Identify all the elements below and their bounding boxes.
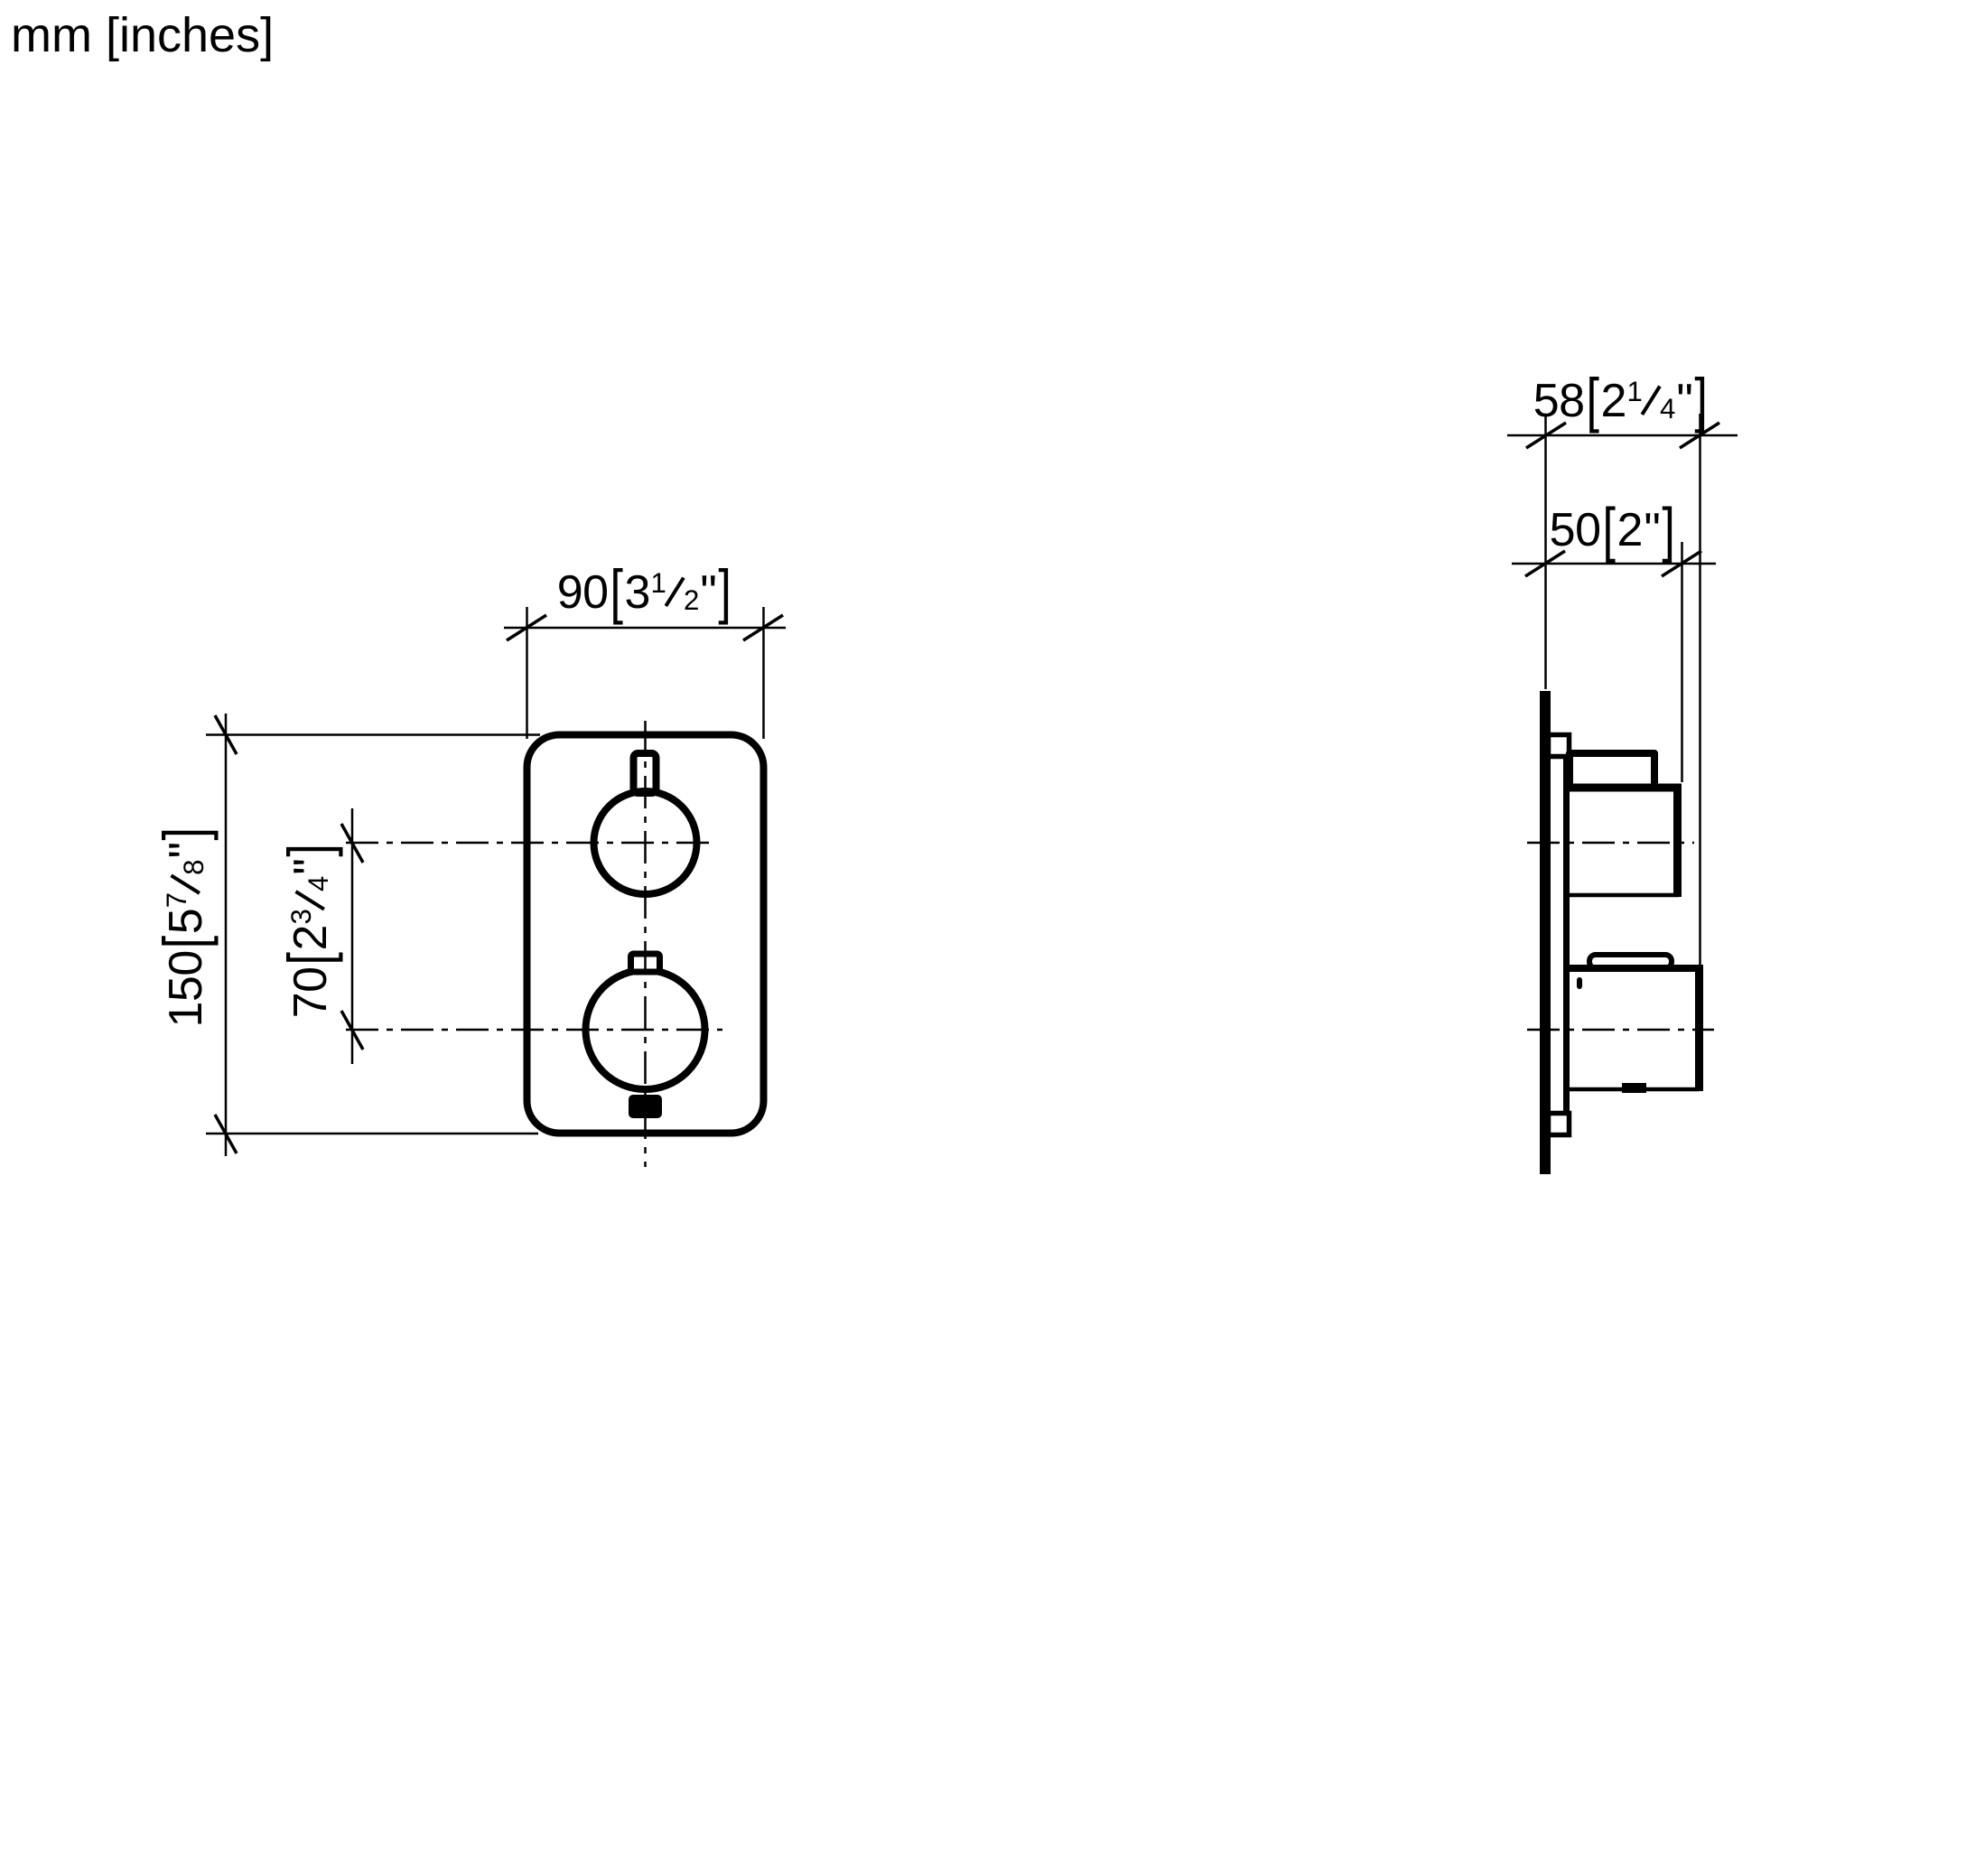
close-bracket: ] [1660,500,1676,561]
escutcheon-bottom-step [1549,1114,1570,1135]
frac-denominator: 4 [1660,393,1675,425]
front-view [346,721,764,1167]
dim-label-handle-spacing: 70[234"] [287,843,334,1019]
dim-inch-whole: 2 [1617,504,1642,556]
dim-label-depth-overall: 58[214"] [1533,378,1710,425]
inch-mark: " [1644,504,1660,556]
side-view [1527,691,1714,1174]
dim-mm: 58 [1533,375,1585,427]
dim-label-depth-to-handle: 50[2"] [1550,507,1677,554]
open-bracket: [ [281,950,341,966]
dim-label-front-width: 90[312"] [557,569,733,616]
inch-mark: " [1676,375,1692,427]
inch-mark: " [284,859,337,875]
side-detail-dot [1577,977,1582,989]
inch-mark: " [160,842,212,858]
dim-mm: 50 [1550,504,1601,556]
frac-denominator: 4 [303,876,334,891]
frac-denominator: 2 [684,584,699,616]
fraction-slash [294,890,325,911]
dim-inch-whole: 5 [160,909,212,934]
units-note: mm [inches] [11,11,274,60]
frac-denominator: 8 [178,860,210,875]
close-bracket: ] [156,826,217,843]
dim-mm: 90 [557,566,609,619]
frac-numerator: 3 [285,910,317,925]
open-bracket: [ [156,934,217,950]
frac-numerator: 1 [1627,376,1643,407]
fraction-slash [1640,385,1662,415]
inch-mark: " [700,566,716,619]
dim-inch-whole: 2 [1601,375,1626,427]
close-bracket: ] [281,843,341,859]
dim-mm: 70 [284,966,337,1018]
units-note-text: mm [inches] [11,8,274,62]
dim-mm: 150 [160,950,212,1027]
close-bracket: ] [1692,371,1709,432]
close-bracket: ] [716,563,732,623]
open-bracket: [ [1601,500,1617,561]
open-bracket: [ [1585,371,1601,432]
open-bracket: [ [609,563,625,623]
fraction-slash [664,576,685,607]
dim-inch-whole: 3 [625,566,650,619]
thermostat-handle-side-front-face [1673,784,1682,897]
frac-numerator: 7 [161,892,192,908]
dimension-drawing: mm [inches] 90[312"] 150[578"] 70[234"] … [0,0,1966,1876]
dim-label-front-height: 150[578"] [163,826,210,1028]
fraction-slash [170,873,200,895]
volume-handle-side-badge-mark [1622,1083,1646,1093]
escutcheon-face-line [1563,734,1570,1135]
dim-inch-whole: 2 [284,925,337,950]
thermostat-handle-side-tab [1570,753,1654,788]
wall-plate-edge [1540,691,1551,1174]
volume-handle-side-front-face [1695,966,1703,1091]
frac-numerator: 1 [651,567,666,599]
